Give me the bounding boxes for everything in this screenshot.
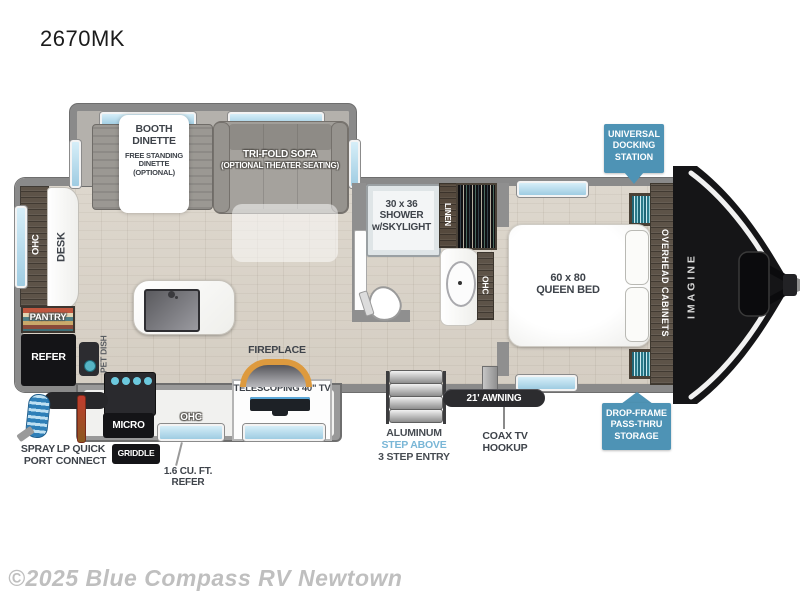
- bedroom-wall-top-stub: [497, 183, 509, 227]
- pass-thru-storage-badge: DROP-FRAME PASS-THRU STORAGE: [602, 403, 671, 450]
- pet-dish-label: PET DISH: [98, 330, 111, 378]
- fireplace-label: FIREPLACE: [238, 345, 316, 357]
- hitch-coupler: [783, 274, 797, 296]
- lp-quick-connect-label: LP QUICK CONNECT: [53, 444, 109, 468]
- desk-label: DESK: [53, 215, 70, 279]
- mini-refer-label: 1.6 CU. FT. REFER: [155, 466, 221, 489]
- dealer-watermark: ©2025 Blue Compass RV Newtown: [8, 565, 402, 592]
- kitchen-ohc-window: [158, 424, 224, 441]
- coax-hookup-label: COAX TV HOOKUP: [471, 431, 539, 455]
- coax-leader-line: [503, 407, 505, 429]
- tv-screen: [250, 397, 310, 411]
- entry-step-labels: ALUMINUM STEP ABOVE 3 STEP ENTRY: [374, 427, 454, 463]
- wardrobe-closet: [456, 183, 497, 250]
- front-cap: [655, 150, 800, 420]
- bed-pillow-bottom: [625, 287, 649, 342]
- step-tread: [389, 409, 443, 423]
- tv-stand: [272, 411, 288, 416]
- bedroom-wall-bottom-stub: [497, 342, 509, 376]
- step-label-3-step-entry: 3 STEP ENTRY: [374, 451, 454, 463]
- step-tread: [389, 396, 443, 410]
- model-number: 2670MK: [40, 26, 125, 52]
- propane-cover: [739, 252, 769, 316]
- bed-pillow-top: [625, 230, 649, 285]
- step-label-step-above: STEP ABOVE: [374, 439, 454, 451]
- step-label-aluminum: ALUMINUM: [374, 427, 454, 439]
- sofa-back-cushion: [229, 124, 332, 150]
- rear-bumper: [44, 392, 108, 409]
- bath-ohc-label: OHC: [478, 264, 491, 306]
- linen-label: LINEN: [441, 189, 454, 240]
- step-rail-left: [386, 371, 389, 424]
- sofa-label: TRI-FOLD SOFA: [213, 149, 347, 160]
- tv-wall-window: [243, 424, 325, 441]
- microwave-label: MICRO: [103, 420, 154, 431]
- step-tread: [389, 383, 443, 397]
- entry-steps: [389, 371, 443, 424]
- booth-dinette-optional-label: FREE STANDING DINETTE (OPTIONAL): [119, 152, 189, 177]
- shower-label: 30 x 36 SHOWER w/SKYLIGHT: [366, 199, 437, 233]
- queen-bed-label: 60 x 80 QUEEN BED: [508, 272, 628, 297]
- slide-left-window: [70, 140, 81, 188]
- sink-faucet-icon: [168, 291, 175, 298]
- sofa-optional-label: (OPTIONAL THEATER SEATING): [205, 161, 355, 170]
- vanity-drain: [458, 281, 462, 285]
- stove-burners: [111, 377, 119, 385]
- mini-refer-leader: [175, 442, 183, 466]
- kitchen-ohc-label: OHC: [160, 412, 222, 423]
- lp-quick-connect-hose: [77, 395, 86, 443]
- area-rug: [232, 204, 338, 262]
- universal-docking-badge: UNIVERSAL DOCKING STATION: [604, 124, 664, 173]
- pantry-label: PANTRY: [21, 313, 75, 324]
- rear-wall-window: [15, 206, 27, 288]
- rear-ohc-label: OHC: [30, 222, 44, 268]
- docking-badge-pointer: [624, 172, 644, 184]
- step-tread: [389, 370, 443, 384]
- pet-dish-bowl: [84, 360, 96, 372]
- bedroom-top-window: [517, 181, 588, 197]
- imagine-brand-logo: IMAGINE: [684, 238, 701, 334]
- refrigerator-label: REFER: [21, 352, 76, 364]
- floorplan-canvas: 2670MK BOOTH DINETTE FREE STANDING DINET…: [0, 0, 800, 600]
- spray-port-nozzle: [16, 426, 35, 442]
- griddle-label: GRIDDLE: [112, 449, 160, 459]
- booth-dinette-label: BOOTH DINETTE: [119, 124, 189, 148]
- awning-label: 21' AWNING: [443, 393, 545, 404]
